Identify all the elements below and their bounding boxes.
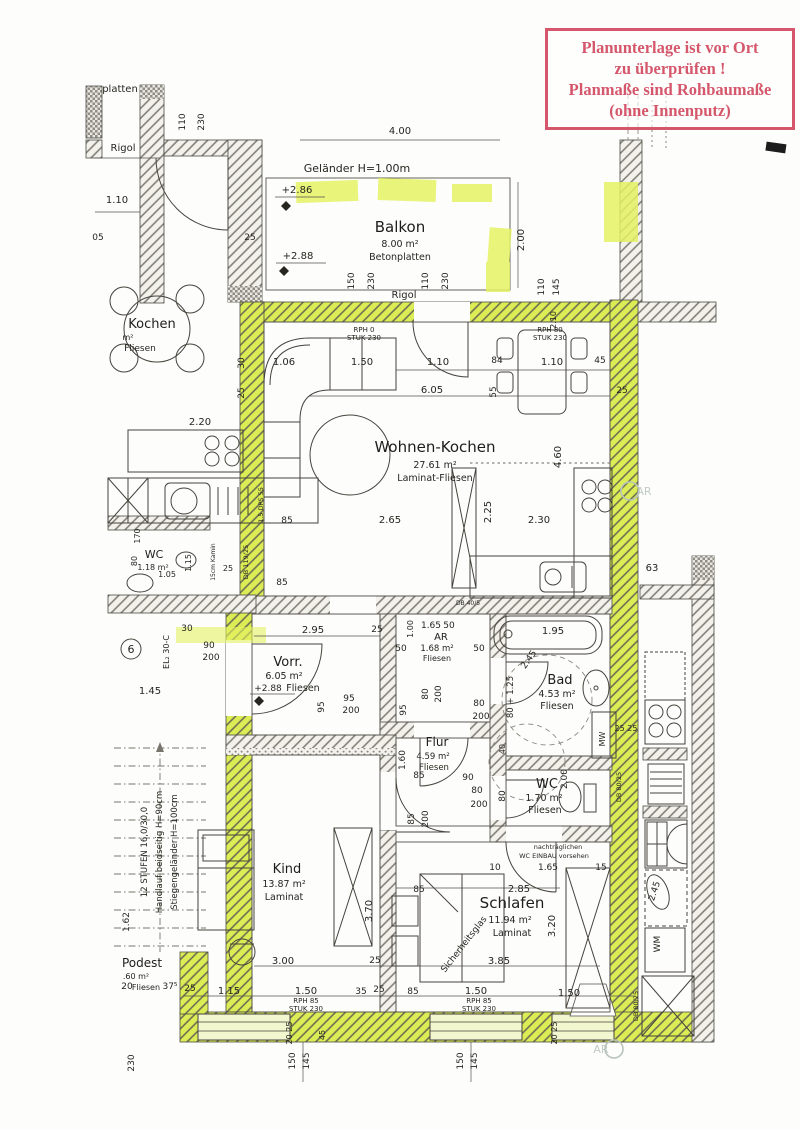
dim-label: 2.95 bbox=[302, 625, 324, 636]
dim-label: 1.10 bbox=[541, 357, 563, 368]
dim-label: 15 bbox=[595, 863, 606, 873]
dim-label: 3.20 bbox=[547, 915, 558, 937]
dim-label: RPH 85 bbox=[466, 997, 491, 1005]
room-label-wc: WC bbox=[536, 777, 558, 792]
dim-label: 80 bbox=[471, 786, 483, 796]
dim-label: Geländer H=1.00m bbox=[304, 162, 411, 175]
dim-label: RPH 85 bbox=[293, 997, 318, 1005]
dim-label: STUK 230 bbox=[347, 334, 381, 342]
dim-label: 1.50 bbox=[295, 986, 317, 997]
dim-label: 55 bbox=[489, 386, 499, 397]
neighbor-door-arc bbox=[156, 158, 228, 230]
window bbox=[198, 1014, 290, 1040]
dim-label: STUK 230 bbox=[462, 1005, 496, 1013]
dim-label: 2.30 bbox=[528, 515, 550, 526]
dim-label: EL₂ 30-C bbox=[162, 635, 171, 669]
dim-label: 1.65 bbox=[421, 621, 441, 631]
room-label-schlafen: Schlafen bbox=[480, 894, 545, 912]
stamp-line: Planunterlage ist vor Ort bbox=[552, 37, 788, 58]
balcony-door-arc bbox=[413, 322, 468, 377]
dim-label: 200 bbox=[421, 810, 431, 827]
dim-label: 1.45 bbox=[139, 686, 161, 697]
room-label-wc-left: WC bbox=[145, 548, 164, 561]
dim-label: 80 bbox=[473, 699, 485, 709]
dim-label: 1.10 bbox=[106, 195, 128, 206]
dim-label: 80 bbox=[421, 688, 431, 700]
dim-label: 230 bbox=[367, 272, 377, 289]
dim-label: 2.45 bbox=[647, 880, 663, 902]
dim-label: 230 bbox=[197, 113, 207, 130]
room-area-schlafen: 11.94 m² bbox=[488, 915, 531, 926]
dim-label: 50 bbox=[473, 644, 485, 654]
dim-label: 05 bbox=[92, 233, 103, 243]
room-area-bad: 4.53 m² bbox=[538, 689, 575, 700]
dim-label: 25 25 bbox=[615, 724, 638, 733]
dim-label: 25 bbox=[244, 233, 255, 243]
room-label-kind: Kind bbox=[273, 862, 302, 877]
dim-label: 200 bbox=[472, 712, 489, 722]
dim-label: 20 25 bbox=[285, 1022, 294, 1045]
dim-label: nachträglichen bbox=[534, 843, 583, 851]
dim-label: WC EINBAU vorsehen bbox=[519, 852, 589, 860]
dim-label: 20 bbox=[121, 982, 133, 992]
dim-label: +2.88 bbox=[254, 684, 282, 694]
dim-label: Handlauf beidseitig H=90cm bbox=[155, 791, 165, 914]
stamp-line: (ohne Innenputz) bbox=[552, 100, 788, 121]
dim-label: DB 80/25 bbox=[615, 772, 623, 802]
dim-label: 1.10 bbox=[427, 357, 449, 368]
dim-label: 150 bbox=[347, 272, 357, 289]
room-floor-schlafen: Laminat bbox=[493, 928, 532, 939]
room-floor-wohnen: Laminat-Fliesen bbox=[397, 473, 472, 484]
dim-label: 85 bbox=[407, 987, 418, 997]
dim-label: 85 bbox=[413, 885, 424, 895]
dim-label: 230 bbox=[127, 1054, 137, 1071]
room-floor-balkon: Betonplatten bbox=[369, 252, 431, 263]
room-label-balkon: Balkon bbox=[375, 218, 426, 236]
dim-label: 85 bbox=[407, 813, 417, 824]
bad-washbasin bbox=[583, 670, 609, 706]
window bbox=[552, 1014, 614, 1040]
kitchen-counter bbox=[574, 468, 612, 598]
dim-label: 3.00 bbox=[272, 956, 294, 967]
dim-label: +2.88 bbox=[283, 251, 314, 262]
dim-label: 80 bbox=[498, 790, 508, 802]
dim-label: 200 bbox=[434, 685, 444, 702]
dim-label: 12 STUFEN 16,0/30,0 bbox=[140, 807, 150, 897]
dim-label: 85 bbox=[413, 771, 424, 781]
room-area-balkon: 8.00 m² bbox=[381, 239, 418, 250]
dim-label: 25 bbox=[371, 625, 382, 635]
dim-label: 110 bbox=[537, 278, 547, 295]
dim-label: 1.5 DPS 55 bbox=[257, 487, 265, 523]
stamp-line: zu überprüfen ! bbox=[552, 58, 788, 79]
dim-label: 3.85 bbox=[488, 956, 510, 967]
dim-label: 30 bbox=[237, 357, 247, 369]
dim-label: STUK 230 bbox=[533, 334, 567, 342]
toilet bbox=[127, 574, 153, 592]
dim-label: 110 bbox=[178, 113, 188, 130]
room-floor-bad: Fliesen bbox=[540, 701, 573, 712]
dim-label: 25 bbox=[616, 386, 627, 396]
room-floor-wc: Fliesen bbox=[528, 805, 561, 816]
dim-label: 1.50 bbox=[558, 988, 580, 999]
dim-label: 1.00 bbox=[406, 620, 415, 638]
dim-label: +2.86 bbox=[282, 185, 313, 196]
dim-label: 95 bbox=[343, 694, 354, 704]
room-floor-vorraum: Fliesen bbox=[286, 683, 319, 694]
dim-label: 30 bbox=[181, 624, 193, 634]
dim-label: 25 bbox=[223, 564, 233, 573]
dim-label: 2.85 bbox=[508, 884, 530, 895]
dim-label: 1.06 bbox=[273, 357, 295, 368]
room-label-wohnen: Wohnen-Kochen bbox=[374, 438, 495, 456]
dim-label: 1.50 bbox=[465, 986, 487, 997]
dim-label: 1.15 bbox=[218, 986, 240, 997]
verification-stamp: Planunterlage ist vor Ort zu überprüfen … bbox=[545, 28, 795, 130]
dim-label: DB 80/25 bbox=[632, 991, 640, 1021]
room-label-podest: Podest bbox=[122, 956, 162, 970]
dim-label: WM bbox=[653, 936, 663, 953]
dim-label: 63 bbox=[646, 563, 659, 574]
dim-label: 4.60 bbox=[553, 446, 564, 468]
room-area-wohnen: 27.61 m² bbox=[413, 460, 456, 471]
dim-label: 25 bbox=[373, 985, 384, 995]
dim-label: 85 bbox=[276, 578, 287, 588]
dim-label: 145 bbox=[470, 1052, 480, 1069]
room-area-kind: 13.87 m² bbox=[262, 879, 305, 890]
dim-label: 15cm Kamin bbox=[210, 543, 217, 581]
dim-label: 10 bbox=[489, 863, 501, 873]
room-floor-ar: Fliesen bbox=[423, 654, 451, 663]
dim-label: 2.20 bbox=[189, 417, 211, 428]
dim-label: 90 bbox=[203, 641, 215, 651]
room-floor-podest: Fliesen bbox=[132, 983, 160, 992]
dim-label: 1.65 bbox=[538, 863, 558, 873]
dim-label: 90 bbox=[462, 773, 474, 783]
room-label-bad: Bad bbox=[547, 673, 572, 688]
dim-label: 110 bbox=[421, 272, 431, 289]
dim-label: 35 bbox=[355, 987, 366, 997]
sink bbox=[540, 562, 586, 592]
dim-label: 37⁵ bbox=[162, 982, 177, 992]
dim-label: 145 bbox=[302, 1052, 312, 1069]
room-area-podest: .60 m² bbox=[123, 972, 149, 981]
dim-label: RPH 0 bbox=[353, 326, 374, 334]
dim-label: platten bbox=[102, 84, 138, 95]
dim-label: 2.65 bbox=[379, 515, 401, 526]
dim-label: 25 bbox=[184, 984, 195, 994]
room-label-ar: AR bbox=[434, 632, 448, 643]
dim-label: 45 bbox=[594, 356, 605, 366]
room-area-vorraum: 6.05 m² bbox=[265, 671, 302, 682]
dim-label: 200 bbox=[202, 653, 219, 663]
dim-label: 84 bbox=[491, 356, 503, 366]
dim-label: 200 bbox=[342, 706, 359, 716]
dim-label: MW bbox=[598, 732, 607, 747]
unit-number: 6 bbox=[128, 643, 135, 656]
dim-label: 2.00 bbox=[516, 229, 527, 251]
room-area-wc: 1.70 m² bbox=[525, 793, 562, 804]
window bbox=[430, 1014, 522, 1040]
room-label-vorraum: Vorr. bbox=[273, 655, 302, 670]
dim-label: 150 bbox=[288, 1052, 298, 1069]
dim-label: STUK 230 bbox=[289, 1005, 323, 1013]
dim-label: 1.95 bbox=[542, 626, 564, 637]
dim-label: 85 bbox=[281, 516, 292, 526]
dim-label: 1.62 bbox=[122, 912, 132, 932]
dim-label: 95 bbox=[317, 701, 327, 712]
dim-label: Stiegengeländer H=100cm bbox=[170, 794, 180, 909]
dim-label: 170 bbox=[133, 528, 142, 543]
dim-label: 145 bbox=[552, 278, 562, 295]
dim-label: Rigol bbox=[111, 143, 136, 154]
dim-label: AR bbox=[636, 485, 652, 498]
dim-label: 4.00 bbox=[389, 126, 411, 137]
furniture-layer bbox=[108, 285, 694, 1036]
dim-label: 2.25 bbox=[483, 501, 494, 523]
dim-label: 1.60 bbox=[398, 750, 408, 770]
dim-label: 20 25 bbox=[550, 1022, 559, 1045]
scanned-floor-plan-page: Balkon 8.00 m² Betonplatten Wohnen-Koche… bbox=[0, 0, 800, 1130]
dim-label: 40 bbox=[498, 744, 507, 754]
dim-label: 50 bbox=[395, 644, 407, 654]
stamp-line: Planmaße sind Rohbaumaße bbox=[552, 79, 788, 100]
dim-label: 2.00 bbox=[560, 769, 570, 789]
room-label-kochen-left: Kochen bbox=[128, 317, 175, 332]
dining-table bbox=[518, 330, 566, 414]
dim-label: 3.70 bbox=[364, 900, 375, 922]
dim-label: 80 + 1.25 bbox=[506, 676, 516, 718]
dim-label: 45 bbox=[318, 1030, 327, 1040]
dim-label: 25 bbox=[369, 956, 380, 966]
dim-label: DB 40/5 bbox=[456, 600, 480, 607]
dim-label: 150 bbox=[456, 1052, 466, 1069]
room-area-ar: 1.68 m² bbox=[420, 644, 453, 654]
dim-label: 6.05 bbox=[421, 385, 443, 396]
room-label-flur: Flur bbox=[426, 735, 449, 749]
dim-label: Rigol bbox=[392, 290, 417, 301]
room-floor-kind: Laminat bbox=[265, 892, 304, 903]
room-area-flur: 4.59 m² bbox=[416, 752, 449, 762]
dim-label: 1.15 bbox=[184, 554, 193, 572]
dim-label: 1.05 bbox=[158, 570, 176, 579]
dim-label: AR bbox=[593, 1043, 609, 1056]
dim-label: DB 119/25 bbox=[242, 545, 250, 579]
dim-label: 200 bbox=[470, 800, 487, 810]
dim-label: 80 bbox=[130, 556, 139, 566]
floor-plan-drawing: Balkon 8.00 m² Betonplatten Wohnen-Koche… bbox=[0, 0, 800, 1130]
dim-label: 2.45 bbox=[520, 649, 540, 671]
room-floor-kochen-left: Fliesen bbox=[124, 344, 156, 354]
dim-label: 95 bbox=[399, 704, 409, 715]
dim-label: 2.10 bbox=[549, 311, 558, 329]
dim-label: 230 bbox=[441, 272, 451, 289]
dim-label: 25 bbox=[237, 387, 247, 398]
room-area-kochen-left: m² bbox=[123, 333, 134, 342]
dim-label: 1.50 bbox=[351, 357, 373, 368]
dim-label: 50 bbox=[443, 621, 455, 631]
